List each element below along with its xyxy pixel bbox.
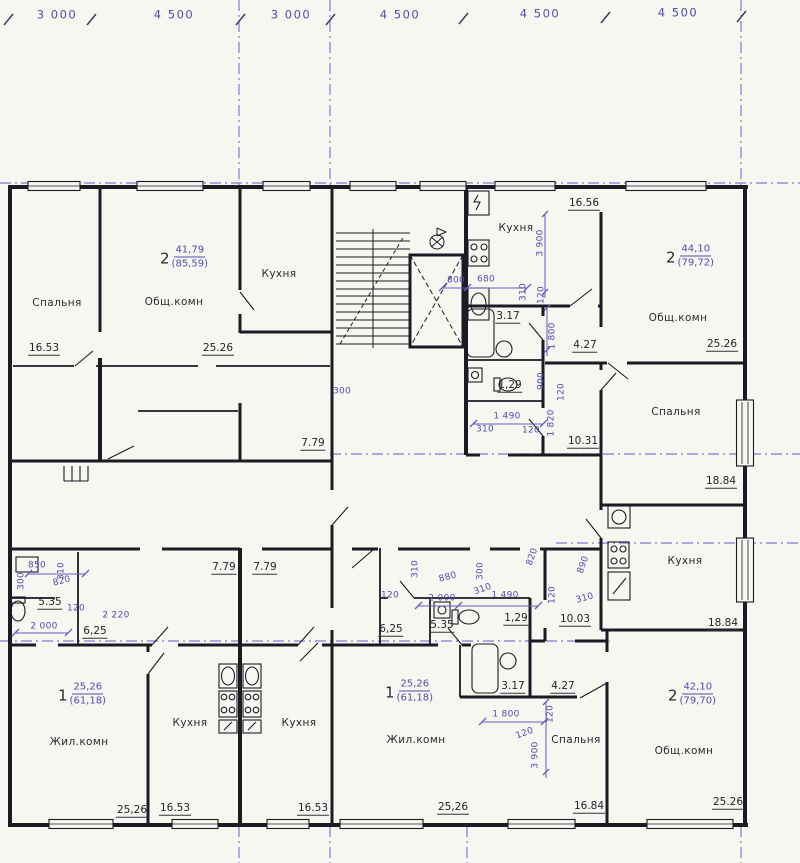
dimension-lines — [12, 211, 550, 778]
elevator-shaft — [410, 255, 463, 347]
entry-steps — [64, 466, 88, 481]
floor-plan-drawing — [0, 0, 800, 863]
dimension-tick-icon — [4, 11, 746, 25]
vent-shaft-icon — [430, 228, 446, 249]
staircase — [336, 229, 410, 348]
floor-plan-canvas: 3 0004 5003 0004 5004 5004 500СпальняОбщ… — [0, 0, 800, 863]
axis-grid-lines — [0, 0, 800, 863]
